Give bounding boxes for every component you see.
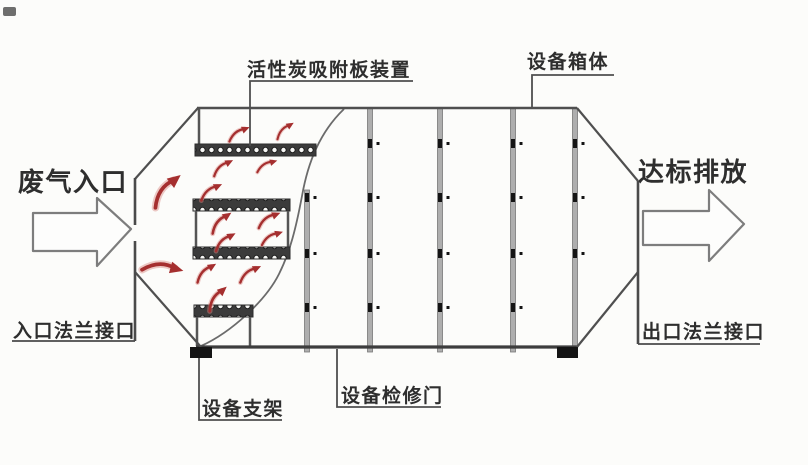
label-equipment-support: 设备支架: [202, 394, 284, 421]
airflow-arrow-icon: [198, 181, 225, 200]
airflow-arrow-icon: [207, 210, 236, 234]
carbon-plate-bar: [193, 199, 290, 211]
carbon-plate-bar: [194, 305, 253, 317]
carbon-plate-bar: [193, 247, 290, 259]
airflow-arrow-icon: [255, 158, 278, 172]
airflow-arrow-icon: [142, 252, 185, 284]
airflow-arrow-icon: [210, 158, 236, 177]
leader-carbon-plate: [250, 81, 413, 146]
artifact-smudge: [3, 7, 16, 16]
support-foot: [557, 347, 578, 358]
label-equipment-box: 设备箱体: [527, 47, 609, 74]
label-inlet-flange: 入口法兰接口: [13, 316, 136, 343]
label-compliant-discharge: 达标排放: [638, 152, 748, 189]
panel-latches: [305, 139, 585, 312]
airflow-arrow-icon: [226, 125, 251, 142]
leader-equipment-box: [532, 75, 614, 107]
panel-divider: [305, 190, 310, 352]
support-foot: [190, 347, 212, 358]
label-maintenance-door: 设备检修门: [341, 381, 444, 408]
airflow-arrow-icon: [237, 263, 264, 282]
outlet-flow-arrow-icon: [643, 190, 744, 261]
airflow-arrow-icon: [273, 121, 297, 140]
airflow-arrow-icon: [260, 229, 285, 245]
label-outlet-flange: 出口法兰接口: [642, 317, 765, 344]
label-waste-gas-inlet: 废气入口: [18, 162, 128, 199]
carbon-plate-bar: [195, 144, 316, 156]
inlet-flow-arrow-icon: [33, 198, 131, 266]
diagram-canvas: 废气入口 达标排放 活性炭吸附板装置 设备箱体 入口法兰接口 出口法兰接口 设备…: [0, 0, 808, 465]
airflow-arrow-icon: [192, 261, 220, 282]
airflow-arrow-icon: [256, 210, 283, 228]
label-carbon-plate-device: 活性炭吸附板装置: [247, 55, 411, 82]
airflow-arrow-icon: [146, 171, 189, 207]
